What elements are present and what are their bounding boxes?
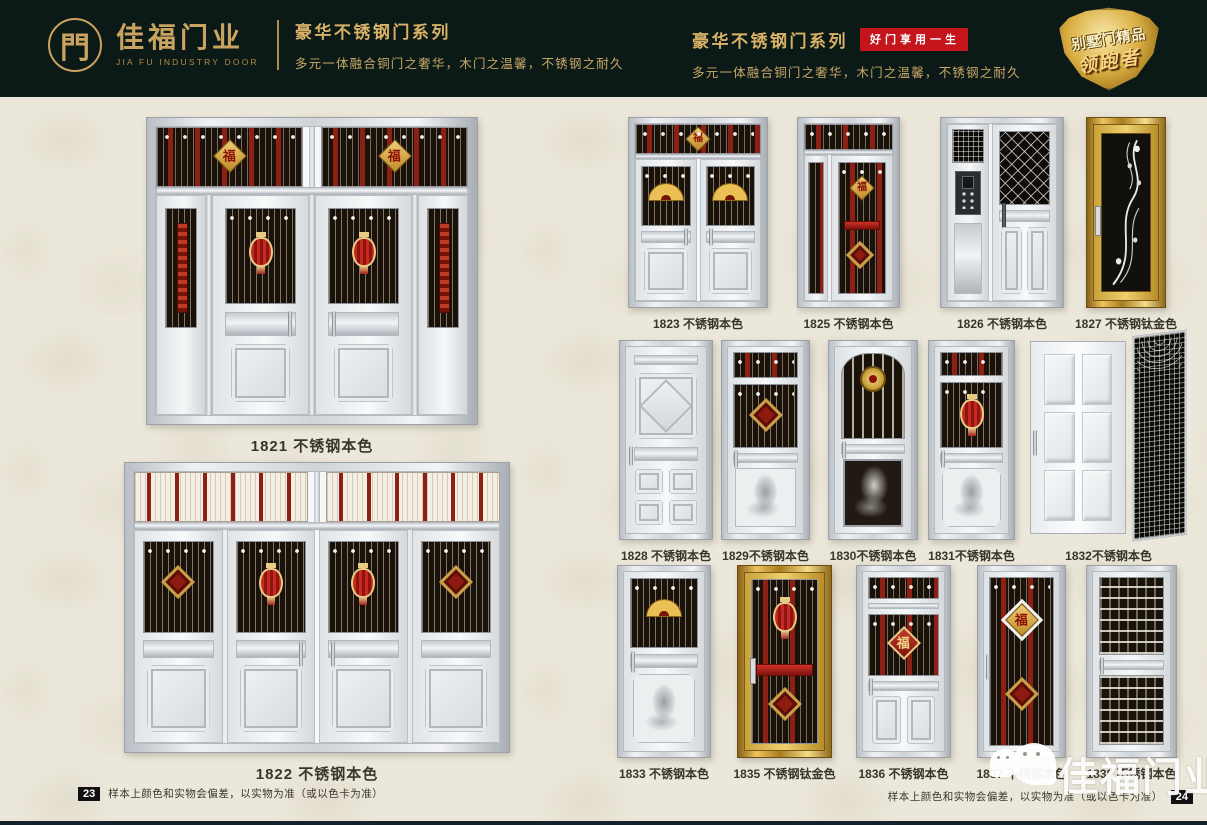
door-1831: 1831不锈钢本色 [928, 340, 1015, 540]
footer-note-left: 样本上颜色和实物会偏差，以实物为准（或以色卡为准） [108, 786, 383, 801]
watermark-brand-text: 佳福门业 [1058, 745, 1207, 803]
door-1821: 福 福 1821 不锈钢本 [146, 117, 478, 425]
brand-block: 佳福门业 JIA FU INDUSTRY DOOR [116, 23, 259, 67]
door-1825: 福 1825 不锈钢本色 [797, 117, 900, 308]
page-number-left: 23 [78, 787, 100, 801]
series-title-right: 豪华不锈钢门系列 [692, 27, 848, 52]
door-1827: 1827 不锈钢钛金色 [1086, 117, 1166, 308]
header-bar: 門 佳福门业 JIA FU INDUSTRY DOOR 豪华不锈钢门系列 多元一… [0, 0, 1207, 97]
door-1837: 福 1837 不锈钢本色 [977, 565, 1066, 758]
door-label-1836: 1836 不锈钢本色 [858, 765, 948, 782]
door-1821-leaf [212, 195, 309, 415]
door-label-1831: 1831不锈钢本色 [928, 547, 1015, 564]
door-1833: 1833 不锈钢本色 [617, 565, 711, 758]
door-label-1828: 1828 不锈钢本色 [621, 547, 711, 564]
brand-name-en: JIA FU INDUSTRY DOOR [116, 57, 259, 67]
door-1822-leaf [134, 530, 223, 743]
door-1832-screen-leaf [1132, 330, 1187, 542]
door-1821-transom: 福 福 [156, 127, 468, 187]
door-1823: 福 1823 不锈钢本色 [628, 117, 768, 308]
series-title-left: 豪华不锈钢门系列 [295, 18, 624, 43]
door-1822-leaf [227, 530, 316, 743]
brand-logo-icon: 門 [48, 18, 102, 72]
door-1822: 1822 不锈钢本色 [124, 462, 510, 753]
intercom-unit [955, 171, 981, 215]
door-1821-leaf [315, 195, 412, 415]
door-1821-side-stile [418, 195, 468, 415]
door-1835: 1835 不锈钢钛金色 [737, 565, 832, 758]
header-right: 豪华不锈钢门系列 好门享用一生 多元一体融合铜门之奢华，木门之温馨，不锈钢之耐久 [692, 27, 1021, 81]
door-label-1835: 1835 不锈钢钛金色 [733, 765, 835, 782]
series-subtitle-left: 多元一体融合铜门之奢华，木门之温馨，不锈钢之耐久 [295, 53, 624, 72]
door-1836: 福 1836 不锈钢本色 [856, 565, 951, 758]
door-1822-transom [134, 472, 500, 522]
door-label-1821: 1821 不锈钢本色 [251, 435, 374, 456]
door-1821-side-stile [156, 195, 206, 415]
door-label-1829: 1829不锈钢本色 [722, 547, 809, 564]
door-1828: 1828 不锈钢本色 [619, 340, 713, 540]
door-1822-leaf [412, 530, 501, 743]
door-label-1825: 1825 不锈钢本色 [803, 315, 893, 332]
scroll-grille-panel [1101, 133, 1151, 292]
door-1822-leaf [319, 530, 408, 743]
door-1826: 1826 不锈钢本色 [940, 117, 1064, 308]
door-label-1832: 1832不锈钢本色 [1065, 547, 1152, 564]
slogan-badge: 好门享用一生 [860, 28, 968, 51]
award-shield-icon: 别墅门精品 领跑者 [1056, 6, 1162, 92]
door-1838: 1838 不锈钢本色 [1086, 565, 1177, 758]
door-1829: 1829不锈钢本色 [721, 340, 810, 540]
footer-left: 23 样本上颜色和实物会偏差，以实物为准（或以色卡为准） [78, 786, 391, 801]
brand-watermark: 佳福门业 [980, 735, 1207, 810]
header-divider [277, 20, 279, 70]
bottom-edge-strip [0, 821, 1207, 825]
header-left: 門 佳福门业 JIA FU INDUSTRY DOOR 豪华不锈钢门系列 多元一… [48, 18, 624, 72]
door-1832: 1832不锈钢本色 [1030, 337, 1187, 540]
door-label-1826: 1826 不锈钢本色 [957, 315, 1047, 332]
watermark-mascot-icon [990, 743, 1062, 801]
series-subtitle-right: 多元一体融合铜门之奢华，木门之温馨，不锈钢之耐久 [692, 62, 1021, 81]
door-1832-panel-leaf [1030, 341, 1126, 534]
brand-name-cn: 佳福门业 [116, 23, 259, 54]
door-label-1833: 1833 不锈钢本色 [619, 765, 709, 782]
door-label-1830: 1830不锈钢本色 [830, 547, 917, 564]
series-block-left: 豪华不锈钢门系列 多元一体融合铜门之奢华，木门之温馨，不锈钢之耐久 [295, 18, 624, 72]
door-label-1827: 1827 不锈钢钛金色 [1075, 315, 1177, 332]
door-label-1823: 1823 不锈钢本色 [653, 315, 743, 332]
door-1830: 1830不锈钢本色 [828, 340, 918, 540]
door-label-1822: 1822 不锈钢本色 [256, 763, 379, 784]
